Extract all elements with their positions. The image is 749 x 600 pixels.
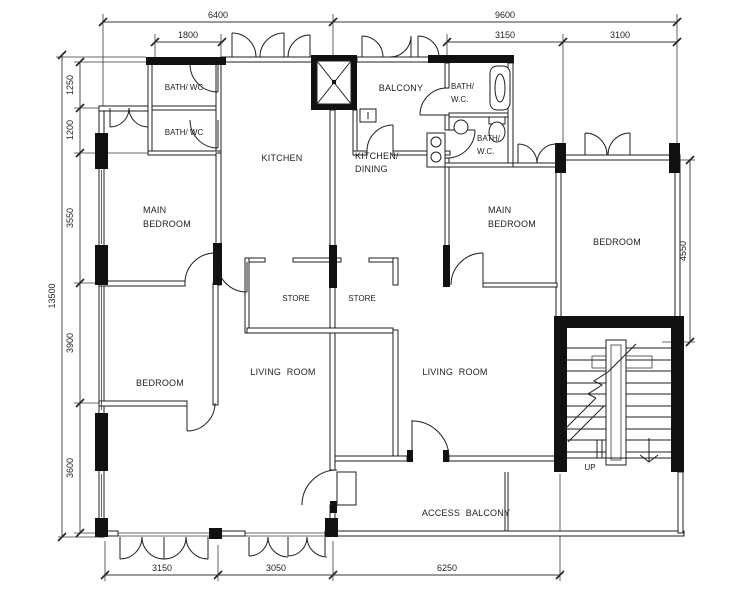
dim-1800: 1800 [178, 30, 198, 40]
dim-1250: 1250 [65, 75, 75, 95]
dim-3550: 3550 [65, 208, 75, 228]
room-bedroom-left: BEDROOM [136, 378, 184, 388]
room-main-bedroom-right-1: MAIN [488, 205, 511, 215]
staircase: UP [560, 340, 671, 472]
floor-plan-svg: 6400 9600 1800 3150 3100 13500 1250 1200… [0, 0, 749, 600]
dim-3150-bottom: 3150 [152, 563, 172, 573]
dimension-labels: 6400 9600 1800 3150 3100 13500 1250 1200… [47, 10, 688, 573]
room-main-bedroom-right-2: BEDROOM [488, 219, 536, 229]
room-bath-wc-left-2: BATH/ WC [165, 128, 204, 137]
stair-stringer [606, 340, 626, 465]
room-bath-wc-right-1b: W.C. [451, 95, 468, 104]
stair-up-label: UP [584, 463, 595, 472]
room-kitchen-dining-1: KITCHEN/ [355, 151, 399, 161]
room-bath-wc-right-2b: W.C. [477, 147, 494, 156]
floor-plan-canvas: 6400 9600 1800 3150 3100 13500 1250 1200… [0, 0, 749, 600]
room-access-balcony: ACCESS BALCONY [422, 508, 510, 518]
room-main-bedroom-left-1: MAIN [143, 205, 166, 215]
room-store-left: STORE [282, 294, 309, 303]
dim-3100: 3100 [610, 30, 630, 40]
dim-3600: 3600 [65, 458, 75, 478]
room-bath-wc-left-1: BATH/ WC [165, 83, 204, 92]
dim-3900: 3900 [65, 333, 75, 353]
room-bedroom-right: BEDROOM [593, 237, 641, 247]
dim-6250: 6250 [437, 563, 457, 573]
dim-3150-top: 3150 [495, 30, 515, 40]
lift-shaft [311, 55, 376, 122]
wash-basin [454, 120, 468, 134]
dim-13500: 13500 [47, 283, 57, 308]
room-store-right: STORE [348, 294, 375, 303]
room-kitchen-dining-2: DINING [355, 164, 388, 174]
room-living-room-left: LIVING ROOM [250, 367, 315, 377]
dim-1200: 1200 [65, 120, 75, 140]
dim-3050: 3050 [266, 563, 286, 573]
room-living-room-right: LIVING ROOM [422, 367, 487, 377]
room-main-bedroom-left-2: BEDROOM [143, 219, 191, 229]
dim-9600: 9600 [495, 10, 515, 20]
room-bath-wc-right-2a: BATH/ [477, 134, 501, 143]
room-bath-wc-right-1a: BATH/ [451, 82, 475, 91]
room-balcony: BALCONY [379, 83, 423, 93]
room-kitchen: KITCHEN [262, 153, 303, 163]
dim-6400: 6400 [208, 10, 228, 20]
